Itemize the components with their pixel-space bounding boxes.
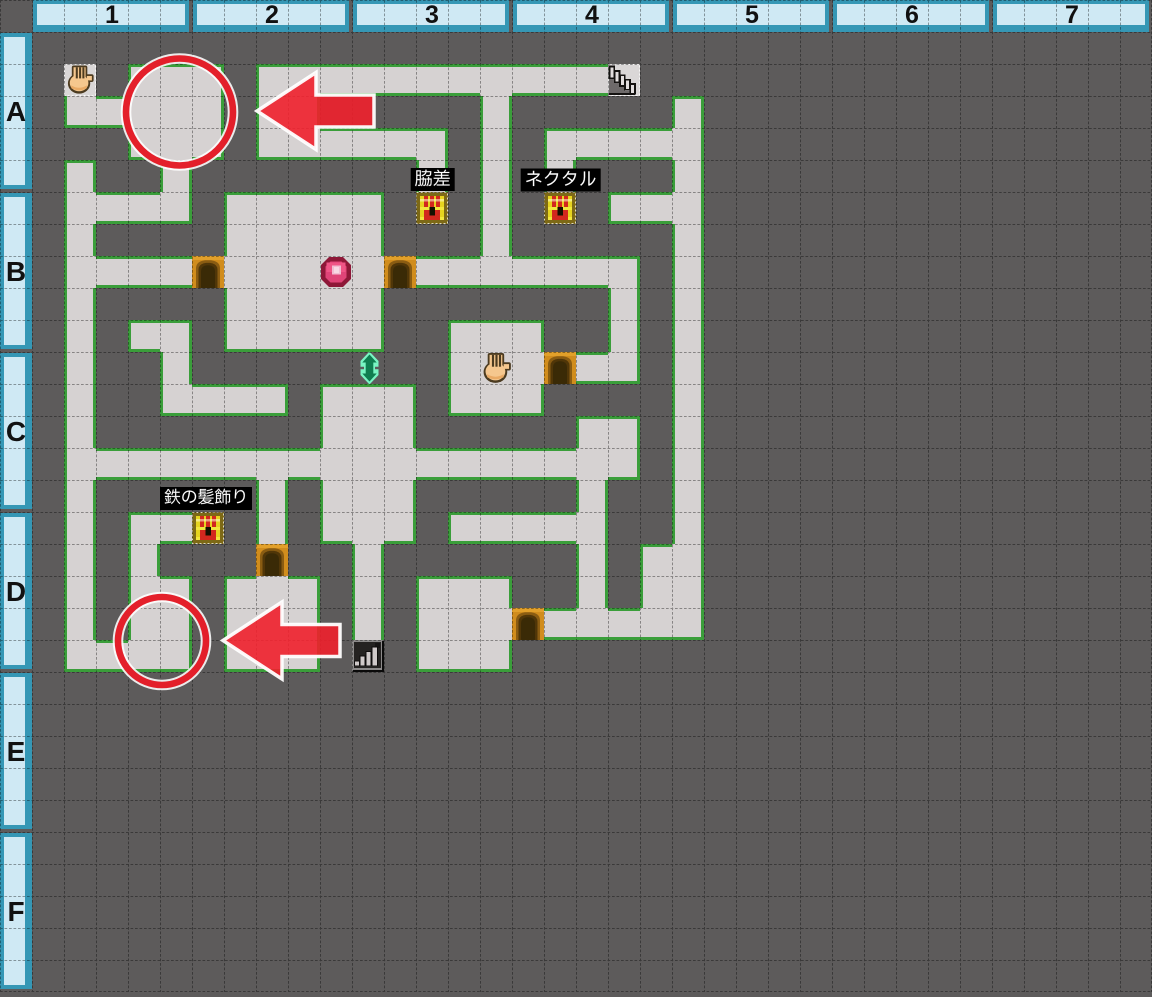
svg-text:5: 5 <box>745 1 759 29</box>
svg-text:C: C <box>6 416 26 447</box>
svg-text:4: 4 <box>585 1 599 29</box>
svg-text:D: D <box>6 576 26 607</box>
svg-text:7: 7 <box>1065 1 1079 29</box>
svg-text:F: F <box>7 896 24 927</box>
svg-text:A: A <box>6 96 26 127</box>
svg-text:3: 3 <box>425 1 439 29</box>
svg-text:E: E <box>7 736 26 767</box>
svg-text:6: 6 <box>905 1 919 29</box>
svg-text:2: 2 <box>265 1 279 29</box>
svg-text:1: 1 <box>105 1 119 29</box>
svg-text:B: B <box>6 256 26 287</box>
